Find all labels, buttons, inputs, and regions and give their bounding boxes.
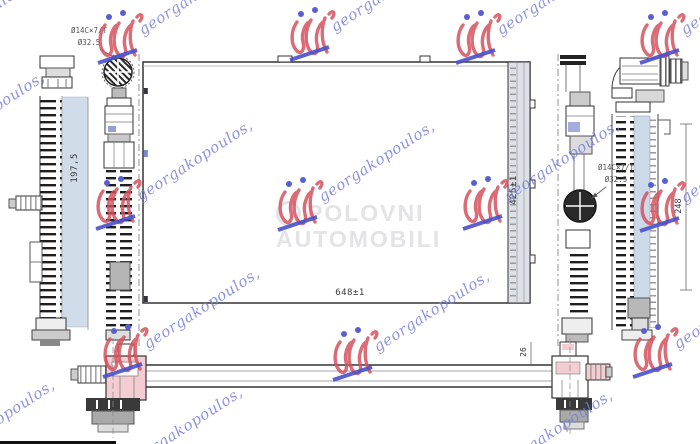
left-side-view	[9, 56, 88, 346]
inlet-annotation-line1: Ø14C×7/T	[71, 26, 108, 35]
radiator-technical-drawing-image: 648±1 425±1 197,5 26 248 Ø14C×7/T Ø32.5 …	[0, 0, 700, 444]
inlet-annotation-line2: Ø32.5	[78, 38, 101, 47]
dim-bottom-depth: 26	[519, 347, 528, 357]
dim-core-width: 648±1	[335, 288, 365, 298]
left-section-view	[102, 54, 139, 348]
polovni-circle-logo-icon	[276, 201, 301, 226]
polovni-automobili-watermark: POLOVNI AUTOMOBILI	[276, 200, 441, 253]
dim-side-height: 197,5	[70, 153, 80, 183]
outlet-annotation-line2: Ø32.5	[605, 175, 628, 184]
right-section-view	[558, 54, 596, 348]
front-view	[143, 56, 535, 303]
dim-core-height: 425±1	[509, 175, 519, 205]
right-detail-view	[612, 56, 688, 340]
polovni-watermark-line1: POLOVNI	[307, 200, 425, 227]
dim-right-depth: 248	[674, 198, 684, 213]
outlet-annotation-line1: Ø14C×7/T	[598, 163, 635, 172]
polovni-watermark-line2: AUTOMOBILI	[276, 226, 441, 253]
